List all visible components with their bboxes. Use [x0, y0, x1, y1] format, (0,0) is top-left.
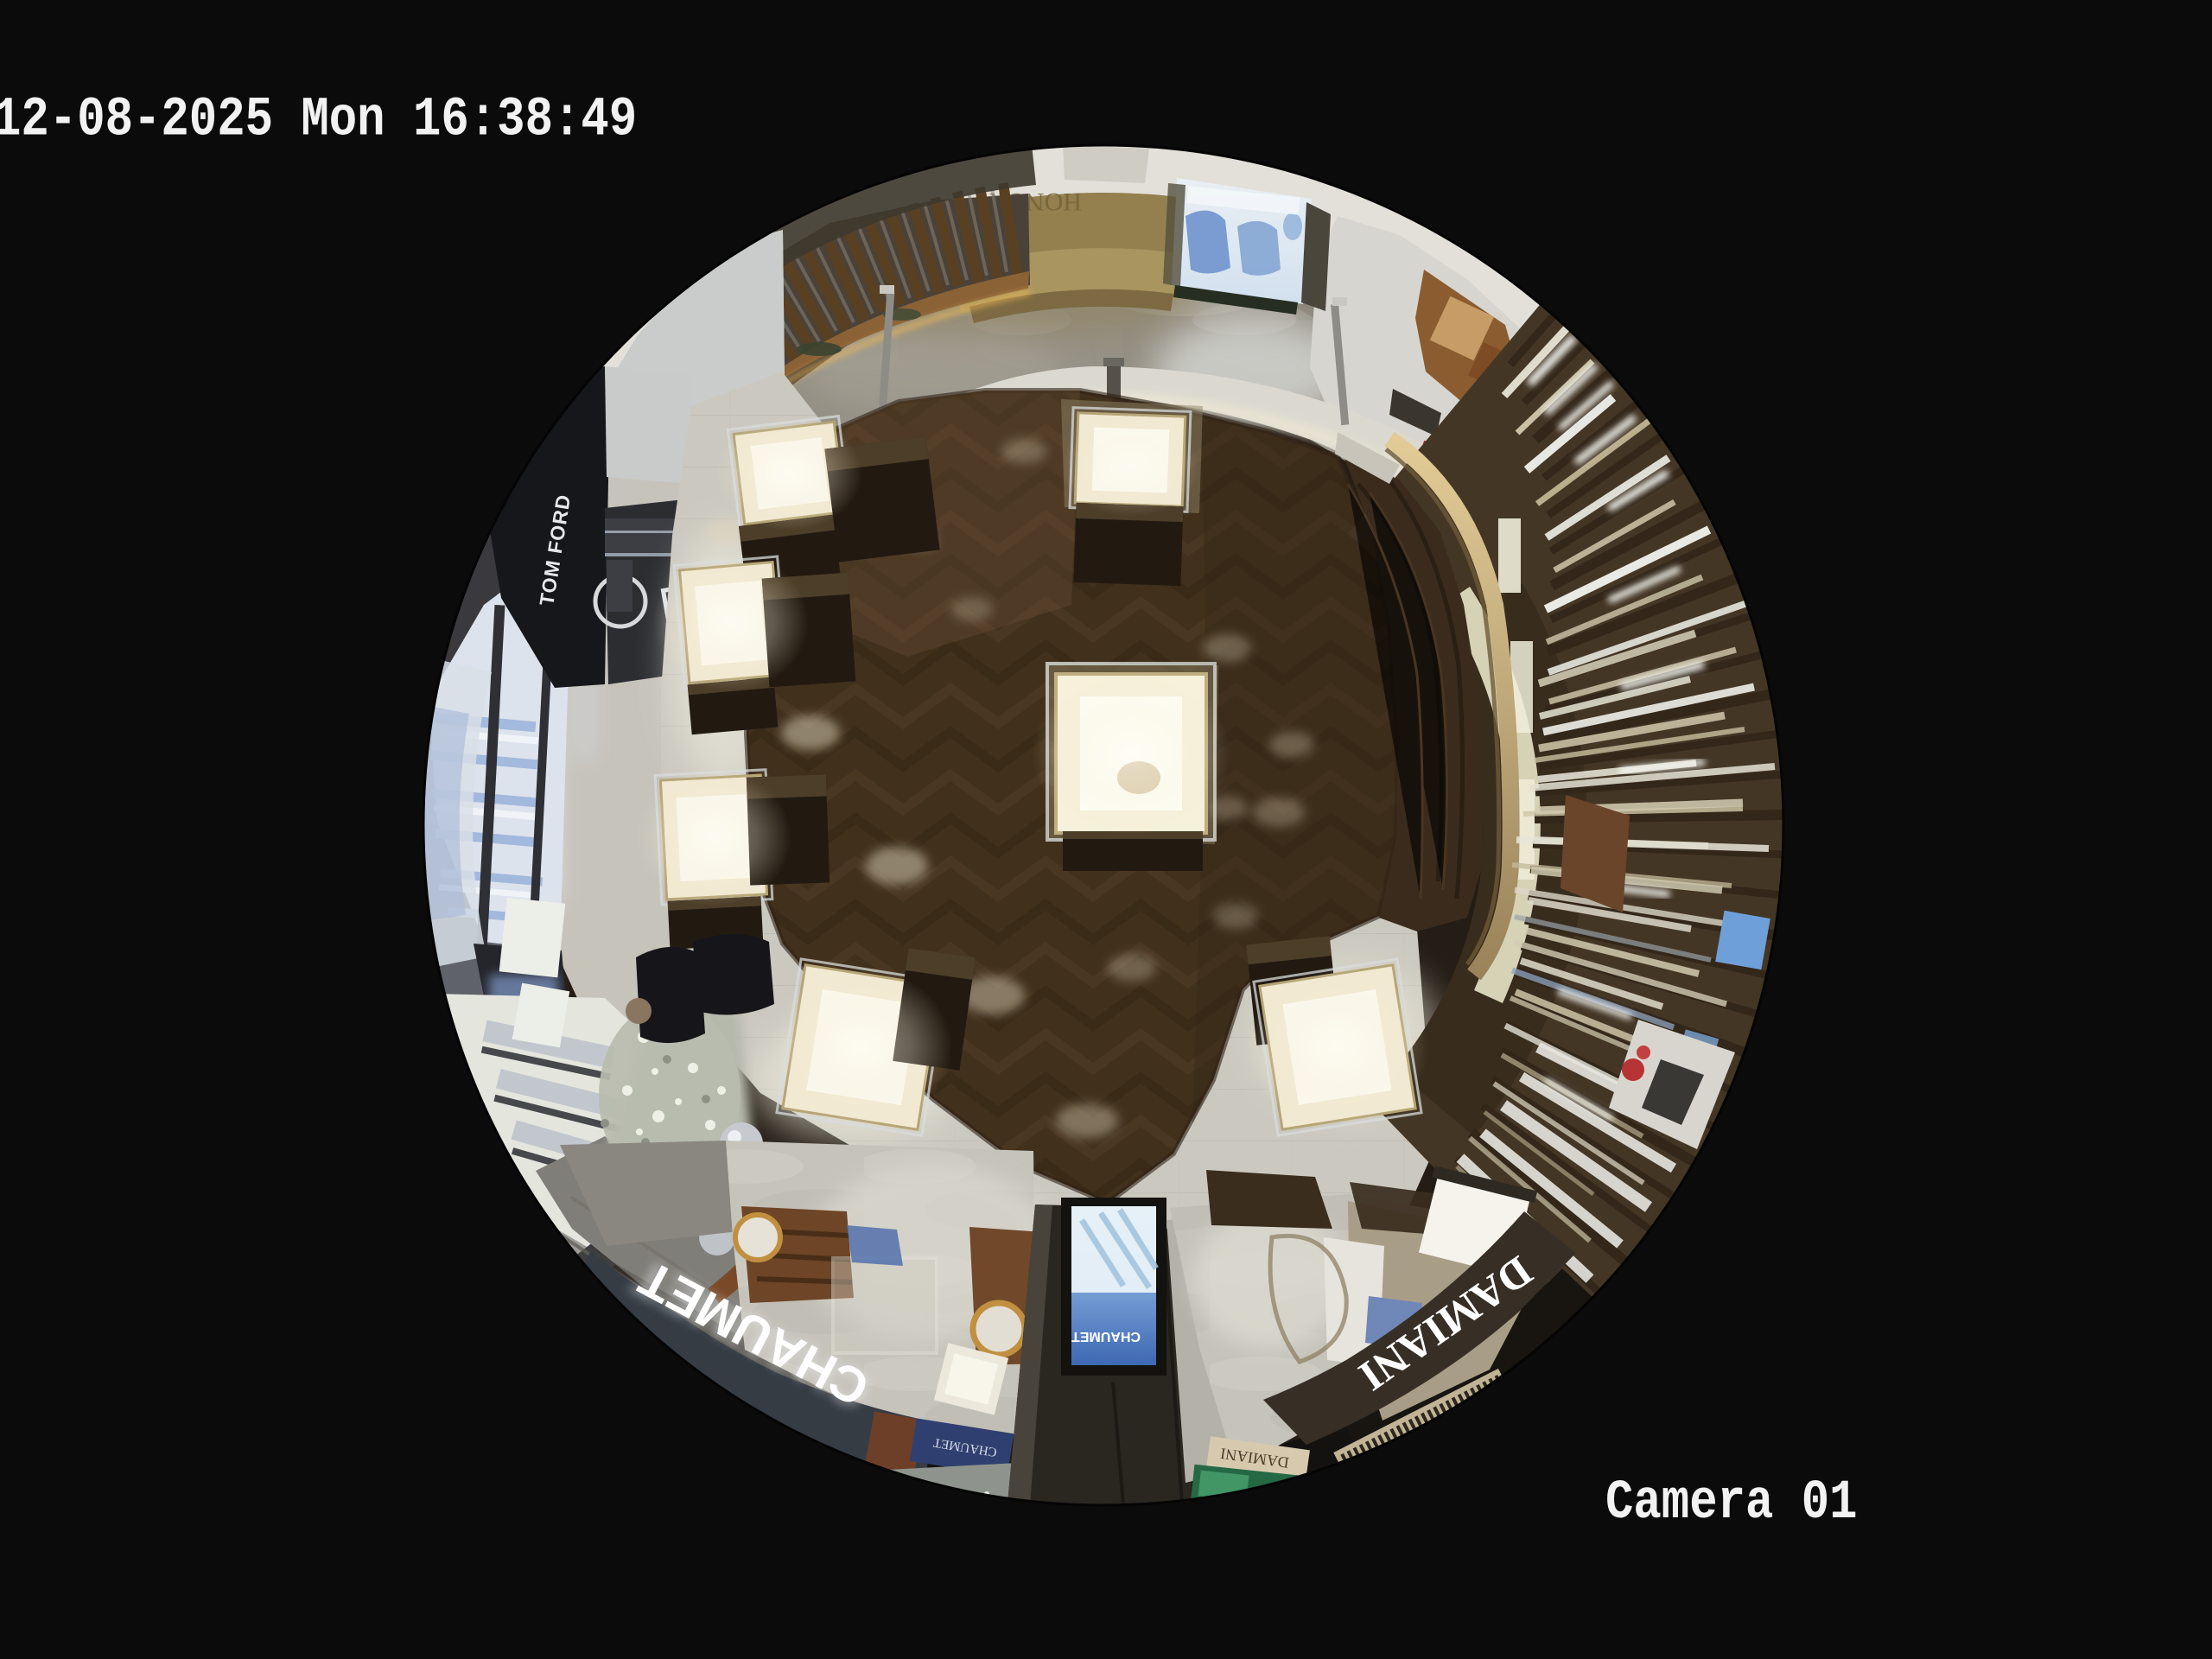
- svg-text:CHAUMET: CHAUMET: [1071, 1329, 1141, 1344]
- svg-text:12-08-2025 Mon 16:38:49: 12-08-2025 Mon 16:38:49: [0, 89, 637, 151]
- svg-text:Camera 01: Camera 01: [1605, 1471, 1858, 1534]
